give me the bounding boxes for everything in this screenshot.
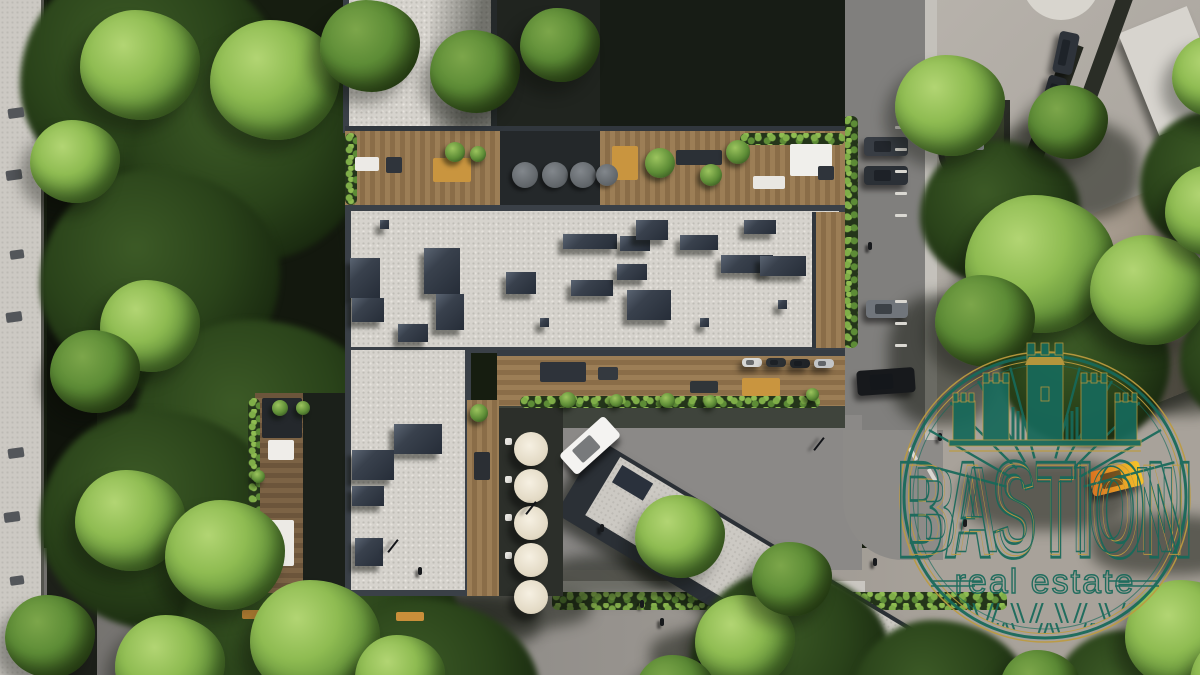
roof-furniture — [753, 176, 785, 189]
courtyard-deck — [467, 400, 499, 596]
car — [864, 137, 908, 156]
roof-furniture — [9, 575, 24, 586]
roof-furniture — [355, 157, 379, 171]
planter-shrub — [445, 142, 465, 162]
bench — [396, 612, 424, 621]
planter-shrub — [806, 388, 819, 401]
aerial-site-render: BASTION BASTION BASTION real estate — [0, 0, 1200, 675]
roof-skylight — [436, 294, 464, 330]
planter-shrub — [560, 392, 576, 408]
tree — [5, 595, 95, 675]
planter-shrub — [272, 400, 288, 416]
car — [766, 358, 786, 367]
brand-text-inner: BASTION — [914, 443, 1175, 578]
roof-skylight — [563, 234, 617, 249]
pedestrian — [660, 618, 664, 626]
planter-shrub — [704, 395, 717, 408]
car — [742, 358, 762, 367]
roof-skylight — [627, 290, 671, 320]
pedestrian — [868, 242, 872, 250]
tree — [430, 30, 520, 113]
tree — [752, 542, 832, 616]
dark-area-northeast — [600, 0, 845, 131]
tree — [80, 10, 200, 120]
roof-furniture — [742, 378, 780, 396]
roof-furniture — [474, 452, 490, 480]
tree — [520, 8, 600, 82]
tree — [1090, 235, 1200, 345]
roof-skylight — [778, 300, 787, 309]
brand-wordmark: BASTION BASTION BASTION real estate — [896, 432, 1193, 601]
tree — [30, 120, 120, 203]
patio-umbrella — [514, 432, 548, 466]
tree — [320, 0, 420, 92]
roof-furniture — [505, 476, 512, 483]
watermark-logo: BASTION BASTION BASTION real estate — [895, 335, 1195, 660]
roof-furniture — [386, 157, 402, 173]
roof-skylight — [394, 424, 442, 454]
planter-shrub — [645, 148, 675, 178]
pedestrian — [873, 558, 877, 566]
east-balcony — [812, 212, 845, 348]
roof-furniture — [676, 150, 722, 165]
tree — [895, 55, 1005, 156]
roof-skylight — [700, 318, 709, 327]
planter-shrub — [610, 394, 623, 407]
car — [864, 166, 908, 185]
patio-umbrella — [514, 469, 548, 503]
terrace-table — [542, 162, 568, 188]
roof-skylight — [680, 235, 718, 250]
roof-skylight — [744, 220, 776, 234]
pedestrian — [640, 600, 644, 608]
planter-shrub — [296, 401, 310, 415]
roof-furniture — [505, 552, 512, 559]
roof-furniture — [690, 381, 718, 393]
roof-skylight — [398, 324, 428, 342]
roof-skylight — [352, 486, 384, 506]
terrace-table — [570, 162, 596, 188]
roof-skylight — [636, 220, 668, 240]
roof-furniture — [268, 440, 294, 460]
patio-umbrella — [514, 543, 548, 577]
pedestrian — [418, 567, 422, 575]
tree — [50, 330, 140, 413]
roof-furniture — [505, 438, 512, 445]
roof-furniture — [818, 166, 834, 180]
tagline-text: real estate — [955, 563, 1136, 601]
patio-umbrella — [514, 580, 548, 614]
roof-skylight — [424, 248, 460, 294]
road-marking — [895, 170, 907, 173]
roof-skylight — [355, 538, 383, 566]
road-marking — [895, 300, 907, 303]
tree — [165, 500, 285, 610]
car — [814, 359, 834, 368]
planter-shrub — [700, 164, 722, 186]
tree — [1028, 85, 1108, 159]
road-marking — [895, 214, 907, 217]
roof-skylight — [380, 220, 389, 229]
planter-shrub — [726, 140, 750, 164]
planter-shrub — [660, 393, 675, 408]
planter-shrub — [470, 146, 486, 162]
roof-skylight — [352, 450, 394, 480]
roof-skylight — [540, 318, 549, 327]
road-marking — [895, 192, 907, 195]
patio-umbrella — [514, 506, 548, 540]
car — [790, 359, 810, 368]
tree — [635, 495, 725, 578]
roof-furniture — [9, 249, 24, 260]
roof-skylight — [350, 258, 380, 298]
road-marking — [895, 322, 907, 325]
planter-shrub — [470, 404, 488, 422]
terrace-table — [512, 162, 538, 188]
roof-furniture — [598, 367, 618, 380]
roof-skylight — [352, 298, 384, 322]
terrace-table — [596, 164, 618, 186]
roof-skylight — [760, 256, 806, 276]
roof-skylight — [571, 280, 613, 296]
roof-furniture — [540, 362, 586, 382]
roof-skylight — [506, 272, 536, 294]
logo-hatch-band — [909, 603, 1181, 637]
pedestrian — [600, 524, 604, 532]
roof-skylight — [617, 264, 647, 280]
dark-gap-southwest — [303, 393, 345, 593]
road-marking — [895, 148, 907, 151]
roof-furniture — [505, 514, 512, 521]
planter-shrub — [252, 470, 265, 483]
